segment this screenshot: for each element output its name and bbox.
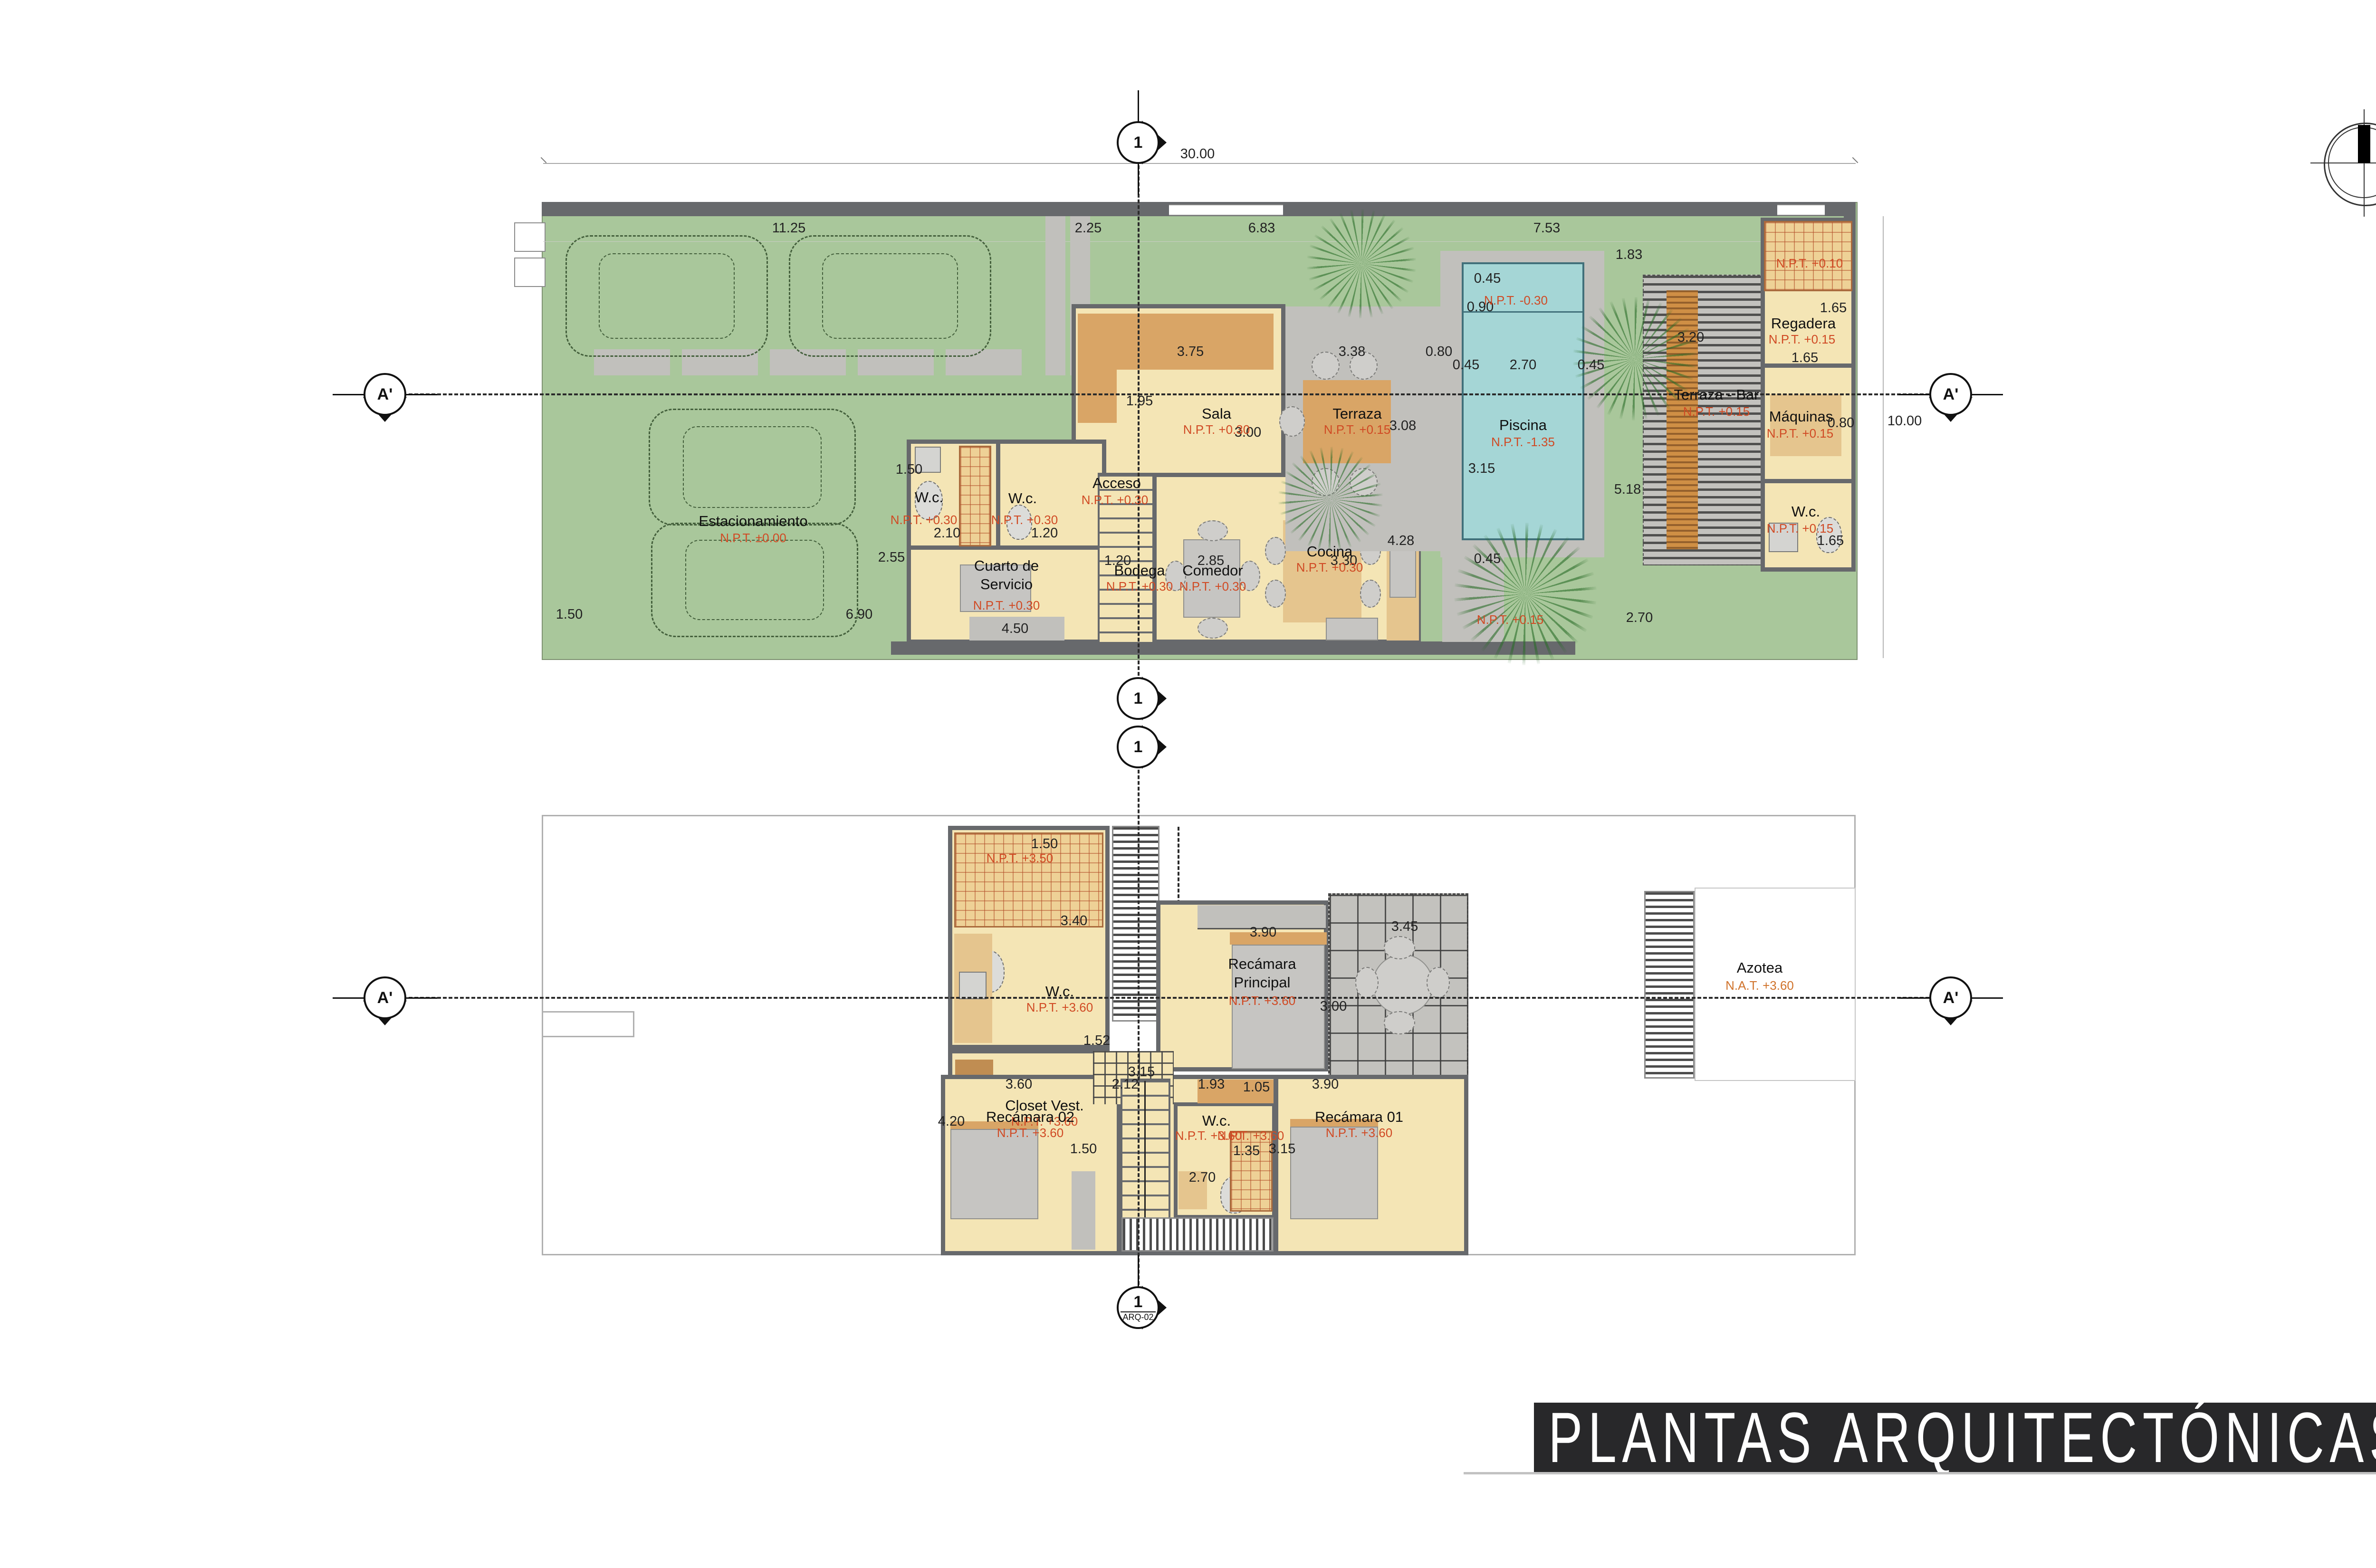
room-name-label: Azotea [1737,959,1783,977]
dimension-label: 2.70 [1189,1169,1216,1186]
upper-floor-plan: A' A' 1 1 ARQ-02 1.50N.P.T. +3.503.40W.c… [0,713,2376,1425]
room-name-label: W.c. [1045,983,1074,1001]
banner-underline [1464,1472,2376,1474]
dimension-label: 4.20 [938,1113,965,1130]
title-banner: PLANTAS ARQUITECTÓNICAS [1534,1403,2376,1472]
dimension-label: 1.50 [1070,1140,1097,1157]
dimension-label: 1.52 [1083,1032,1110,1049]
room-name-label: Recámara Principal [1228,955,1296,992]
upper-floor-labels: 1.50N.P.T. +3.503.40W.c.N.P.T. +3.60Clos… [0,0,2376,1425]
npt-level-label: N.P.T. +3.50 [987,851,1053,866]
npt-level-label: N.P.T. +3.60 [1229,993,1295,1009]
npt-level-label: N.P.T. +3.60 [997,1125,1063,1141]
dimension-label: 1.50 [1031,835,1058,852]
dimension-label: 3.45 [1391,918,1418,935]
dimension-label: 3.90 [1312,1076,1339,1093]
dimension-label: 3.00 [1320,998,1347,1015]
dimension-label: 2.12 [1112,1076,1139,1093]
room-name-label: Recámara 01 [1315,1108,1403,1127]
dimension-label: 3.60 [1006,1076,1032,1093]
dimension-label: 3.15 [1269,1140,1295,1157]
dimension-label: 1.05 [1243,1079,1270,1096]
room-name-label: W.c. [1202,1112,1231,1130]
dimension-label: 1.35 [1233,1142,1260,1159]
dimension-label: 3.90 [1250,924,1276,941]
sheet-title: PLANTAS ARQUITECTÓNICAS [1548,1396,2376,1479]
architectural-sheet: A' A' 1 1 30.0011.252.256.837.531.8310.0… [0,0,2376,1568]
dimension-label: 1.93 [1198,1076,1225,1093]
npt-level-label: N.P.T. +3.60 [1026,1000,1093,1015]
dimension-label: 3.40 [1061,912,1087,929]
room-name-label: Recámara 02 [986,1108,1074,1127]
npt-level-label: N.A.T. +3.60 [1725,978,1794,994]
npt-level-label: N.P.T. +3.60 [1326,1125,1392,1141]
